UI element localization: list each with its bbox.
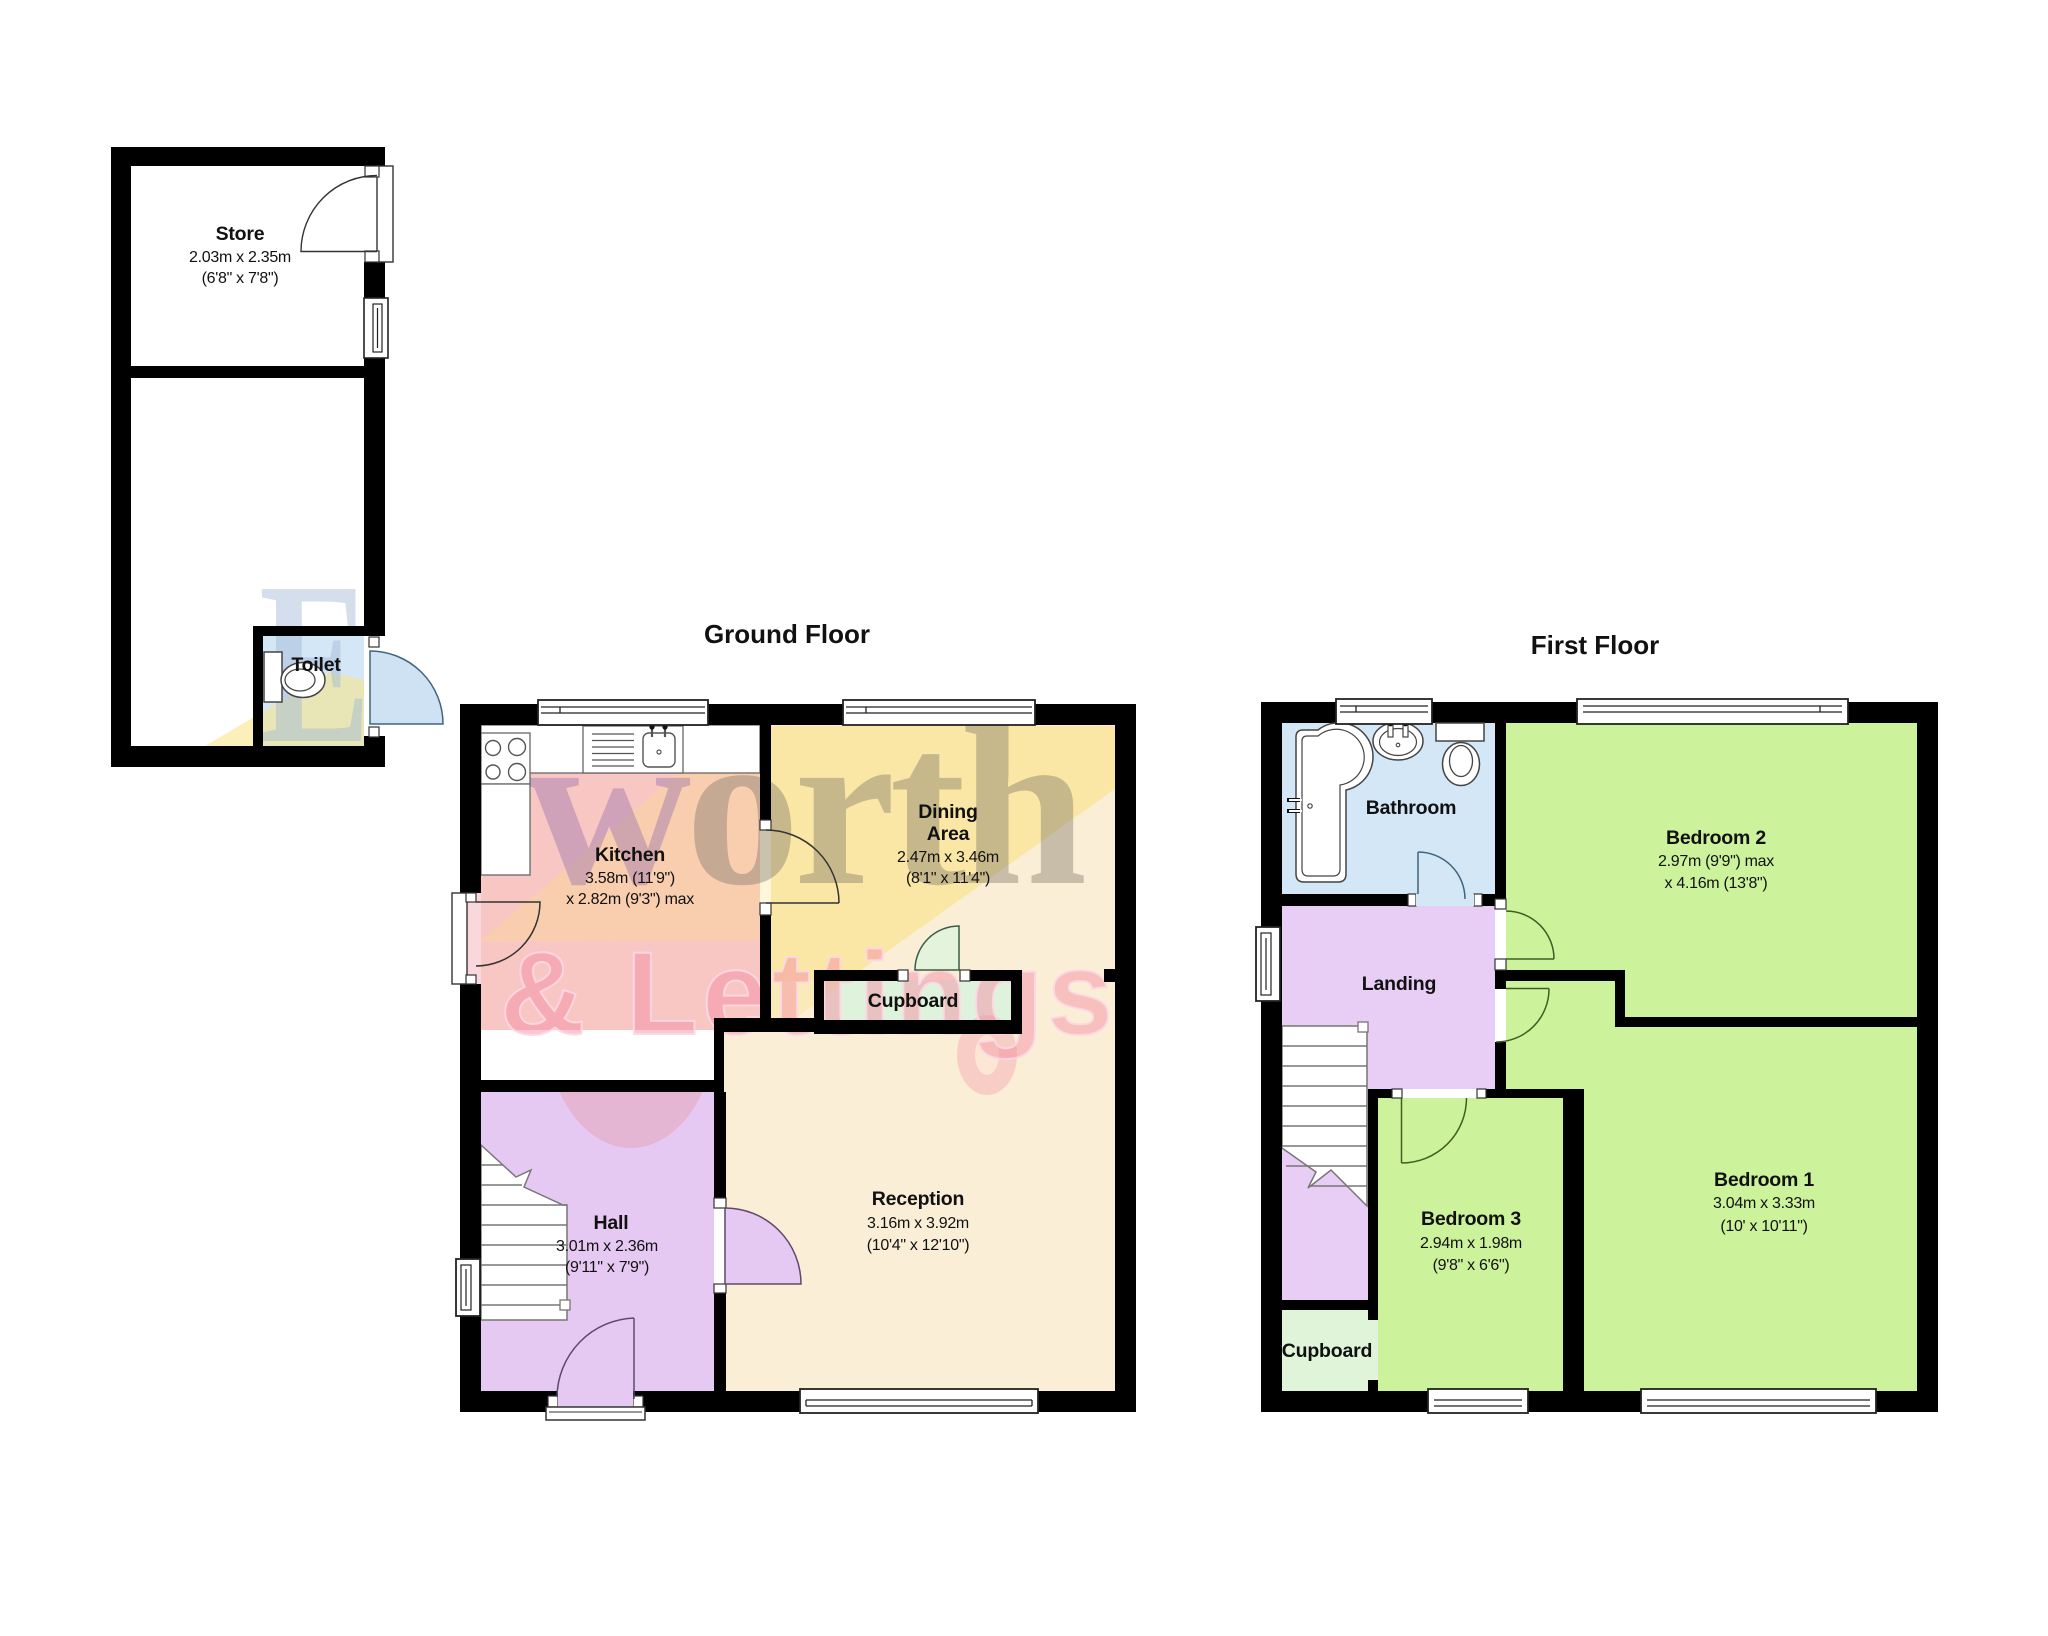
svg-text:x 2.82m (9'3") max: x 2.82m (9'3") max (566, 891, 694, 908)
svg-text:(9'11" x 7'9"): (9'11" x 7'9") (565, 1259, 649, 1276)
svg-text:Kitchen: Kitchen (595, 844, 665, 866)
svg-text:(9'8" x 6'6"): (9'8" x 6'6") (1433, 1257, 1510, 1274)
svg-text:3.58m (11'9"): 3.58m (11'9") (585, 870, 675, 887)
svg-text:Area: Area (927, 823, 970, 845)
svg-text:3.16m x 3.92m: 3.16m x 3.92m (867, 1215, 969, 1232)
svg-text:2.97m (9'9") max: 2.97m (9'9") max (1658, 853, 1774, 870)
svg-text:Reception: Reception (872, 1188, 964, 1210)
svg-text:Ground Floor: Ground Floor (704, 619, 870, 649)
svg-text:& Lettings: & Lettings (500, 928, 1117, 1060)
svg-text:Store: Store (216, 223, 265, 245)
svg-text:Bathroom: Bathroom (1366, 797, 1456, 819)
svg-text:(10'4" x 12'10"): (10'4" x 12'10") (867, 1237, 970, 1254)
svg-text:3.01m x 2.36m: 3.01m x 2.36m (556, 1238, 658, 1255)
svg-text:Hall: Hall (594, 1212, 629, 1234)
svg-text:Bedroom 2: Bedroom 2 (1666, 827, 1766, 849)
svg-text:(6'8" x 7'8"): (6'8" x 7'8") (202, 270, 279, 287)
svg-text:(8'1" x 11'4"): (8'1" x 11'4") (906, 870, 990, 887)
svg-text:Cupboard: Cupboard (1282, 1340, 1372, 1362)
svg-text:3.04m x 3.33m: 3.04m x 3.33m (1713, 1195, 1815, 1212)
svg-text:2.47m x 3.46m: 2.47m x 3.46m (897, 849, 999, 866)
svg-text:Landing: Landing (1362, 973, 1436, 995)
svg-text:Toilet: Toilet (291, 654, 341, 676)
svg-text:Cupboard: Cupboard (868, 990, 958, 1012)
svg-text:First Floor: First Floor (1531, 630, 1660, 660)
svg-text:2.94m x 1.98m: 2.94m x 1.98m (1420, 1235, 1522, 1252)
svg-text:2.03m x 2.35m: 2.03m x 2.35m (189, 249, 291, 266)
svg-text:Bedroom 3: Bedroom 3 (1421, 1208, 1521, 1230)
svg-text:(10' x 10'11"): (10' x 10'11") (1720, 1218, 1807, 1235)
svg-text:x 4.16m (13'8"): x 4.16m (13'8") (1665, 875, 1768, 892)
svg-text:Bedroom 1: Bedroom 1 (1714, 1169, 1814, 1191)
svg-text:Dining: Dining (918, 801, 977, 823)
